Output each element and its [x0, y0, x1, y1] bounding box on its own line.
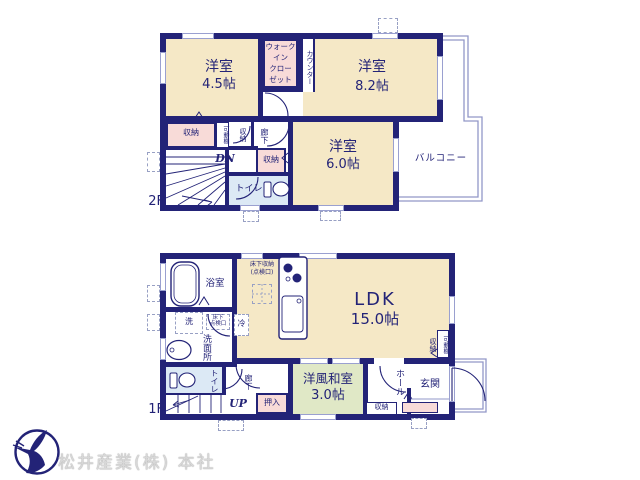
stairs-up-label: UP	[226, 398, 250, 410]
room-label-bedroom-4_5: 洋室	[190, 60, 248, 76]
window	[241, 253, 263, 259]
bathtub	[171, 262, 199, 306]
window	[372, 33, 398, 39]
window	[160, 263, 166, 291]
balcony-label: バルコニー	[411, 154, 471, 165]
bird-icon	[14, 430, 47, 473]
toilet-2f-label: トイレ	[233, 184, 265, 194]
closet-2f-left-label: 収納	[171, 129, 211, 138]
window	[160, 338, 166, 360]
movable-shelf-2f-label: 可動棚	[217, 124, 228, 146]
movable-shelf-1f-label: 可動棚	[438, 333, 448, 356]
dashed-step	[243, 211, 259, 222]
hallway-2f-label: 廊下	[256, 124, 268, 148]
floor-1f-label: 1F	[136, 403, 164, 418]
wic-label-line4: ゼット	[263, 76, 298, 84]
window	[182, 33, 214, 39]
room-size-bedroom-4_5: 4.5帖	[190, 78, 248, 93]
room-size-bedroom-8_2: 8.2帖	[344, 80, 400, 95]
wall	[251, 122, 254, 148]
wic-label-line2: イン	[263, 54, 298, 62]
washitsu-label: 洋風和室	[295, 372, 361, 386]
fridge-label: 冷	[234, 320, 249, 329]
wic-label-line3: クロー	[263, 65, 298, 73]
underfloor-inspection-line2: 点検口	[206, 322, 230, 328]
room-size-bedroom-6_0: 6.0帖	[318, 158, 368, 173]
closet-2f-small-label: 収納	[234, 124, 246, 146]
entrance-label: 玄関	[414, 379, 446, 390]
wall	[160, 205, 399, 211]
wall	[222, 367, 226, 395]
dashed-step	[218, 420, 244, 431]
wall	[258, 88, 303, 92]
floor-plan-canvas: 洋室 4.5帖 ウォーク イン クロー ゼット カウンター 洋室 8.2帖 収納…	[0, 0, 640, 480]
ldk-size: 15.0帖	[341, 311, 409, 328]
wic-label-line1: ウォーク	[263, 43, 298, 51]
oshiire-label: 押入	[258, 399, 286, 408]
washbasin	[167, 341, 191, 360]
washroom-label: 洗面所	[196, 331, 210, 363]
entrance-porch	[455, 359, 486, 412]
wall	[288, 116, 293, 211]
underfloor-storage-line2: (点検口)	[242, 270, 282, 276]
underfloor-storage-line1: 床下収納	[242, 262, 282, 268]
shoe-box	[402, 402, 438, 413]
stairs-1f	[166, 395, 221, 413]
closet-hall-label: 収納	[366, 404, 397, 412]
ldk-label: LDK	[345, 290, 405, 310]
underfloor-storage-box	[252, 284, 272, 304]
window	[449, 296, 455, 324]
sliding-door	[300, 358, 328, 364]
dashed-unit	[147, 314, 160, 331]
counter-label: カウンター	[301, 42, 313, 92]
bathroom-label: 浴室	[200, 279, 230, 290]
dashed-unit	[147, 152, 160, 172]
window	[160, 52, 166, 84]
company-logo-icon	[13, 430, 59, 474]
dashed-step	[411, 418, 427, 429]
floor-2f-label: 2F	[136, 195, 164, 210]
window	[300, 414, 336, 420]
wall	[288, 362, 293, 414]
dashed-step	[320, 211, 341, 221]
window	[299, 253, 337, 259]
washitsu-size: 3.0帖	[301, 389, 355, 404]
room-label-bedroom-6_0: 洋室	[319, 140, 367, 156]
closet-ldk-label: 収納	[424, 333, 436, 357]
company-name: 松井産業(株) 本社	[58, 448, 216, 473]
window	[437, 56, 443, 100]
toilet-1f-label: トイレ	[206, 368, 218, 393]
dashed-vent	[378, 18, 398, 33]
closet-2f-mid-label: 収納	[258, 156, 284, 165]
sliding-door	[332, 358, 360, 364]
hall-opening	[374, 358, 404, 364]
room-label-bedroom-8_2: 洋室	[346, 60, 398, 76]
hall-label: ホール	[391, 367, 403, 397]
room-bedroom-8_2	[303, 39, 437, 116]
hallway-1f-label: 廊下	[240, 369, 252, 394]
wall	[166, 393, 222, 395]
dashed-unit	[147, 285, 160, 302]
stairs-down-label: DN	[212, 153, 238, 165]
window	[393, 138, 399, 172]
entrance-door-gap	[449, 366, 455, 402]
wall	[232, 259, 237, 362]
washer-label: 洗	[175, 318, 203, 327]
